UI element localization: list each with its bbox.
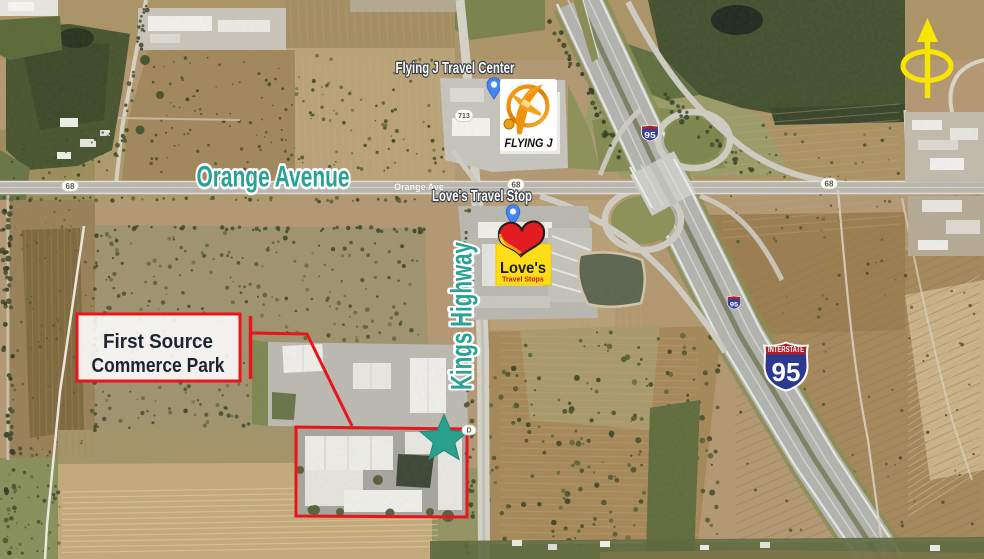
svg-text:First Source: First Source bbox=[103, 331, 213, 353]
svg-text:FLYING J: FLYING J bbox=[505, 136, 553, 150]
svg-text:Love's Travel Stop: Love's Travel Stop bbox=[432, 188, 532, 205]
svg-text:95: 95 bbox=[772, 357, 801, 387]
svg-text:Flying J Travel Center: Flying J Travel Center bbox=[396, 60, 515, 77]
svg-text:INTERSTATE: INTERSTATE bbox=[768, 345, 804, 354]
svg-text:713: 713 bbox=[458, 113, 470, 120]
svg-text:D: D bbox=[466, 427, 471, 434]
svg-text:95: 95 bbox=[730, 302, 738, 309]
svg-text:Orange Avenue: Orange Avenue bbox=[197, 161, 350, 194]
svg-text:68: 68 bbox=[825, 179, 834, 188]
svg-text:Kings Highway: Kings Highway bbox=[446, 242, 479, 390]
svg-text:Love's: Love's bbox=[500, 260, 546, 277]
svg-text:68: 68 bbox=[66, 182, 75, 191]
svg-text:Commerce Park: Commerce Park bbox=[92, 355, 226, 377]
svg-text:Travel Stops: Travel Stops bbox=[502, 277, 544, 284]
svg-text:95: 95 bbox=[644, 131, 656, 141]
